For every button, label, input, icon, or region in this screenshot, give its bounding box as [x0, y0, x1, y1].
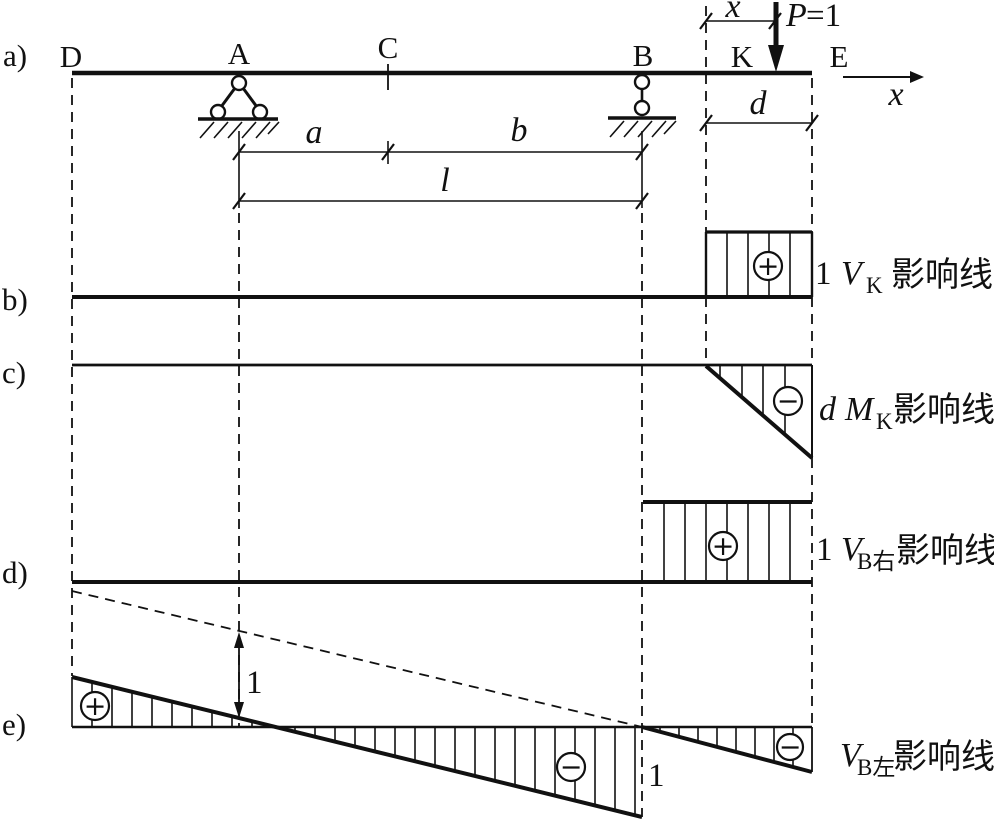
vbr-caption: 1 V B右 影响线 — [816, 531, 994, 574]
dim-a-label: a — [306, 114, 323, 151]
point-label-K: K — [731, 39, 754, 74]
panel-c-label: c) — [2, 355, 26, 390]
vbr-caption-text: 影响线 — [896, 532, 994, 570]
figure-canvas: a) D A C B K E — [0, 0, 994, 821]
panel-a-label: a) — [3, 38, 27, 73]
load-label-value: =1 — [806, 0, 841, 34]
point-label-D: D — [60, 39, 82, 74]
dim-b-label: b — [511, 112, 528, 149]
load-label-P: P — [785, 0, 807, 34]
vbr-subscript: B右 — [857, 549, 895, 574]
mk-caption-text: 影响线 — [893, 391, 994, 429]
mk-subscript: K — [876, 409, 893, 434]
influence-line-figure: a) D A C B K E — [0, 0, 994, 821]
panel-e-label: e) — [2, 707, 26, 742]
vk-ordinate: 1 — [815, 256, 832, 292]
support-A-right-hinge — [253, 105, 267, 119]
panel-d-label: d) — [2, 555, 28, 590]
point-label-B: B — [633, 38, 654, 73]
vbl-subscript: B左 — [857, 755, 895, 780]
vbl-unit-label: 1 — [246, 665, 263, 701]
dim-l-label: l — [440, 162, 449, 199]
vk-subscript: K — [866, 273, 883, 298]
vbl-plus-sign: + — [84, 691, 107, 722]
vbl-minus-sign-overhang: − — [779, 732, 802, 763]
dim-d-label: d — [750, 85, 768, 122]
mk-caption: d M K 影响线 — [819, 391, 994, 434]
vbl-minus-sign-span: − — [560, 752, 583, 783]
vk-caption-text: 影响线 — [891, 256, 993, 294]
vbl-caption-text: 影响线 — [893, 738, 994, 776]
mk-symbol: M — [844, 391, 875, 428]
vk-plus-sign: + — [757, 251, 780, 282]
support-A-top-hinge — [232, 76, 246, 90]
mk-ordinate: d — [819, 391, 837, 428]
support-B-bottom-hinge — [635, 101, 649, 115]
vbr-plus-sign: + — [712, 531, 735, 562]
point-label-E: E — [830, 39, 849, 74]
point-label-C: C — [378, 30, 399, 65]
support-A-left-hinge — [211, 105, 225, 119]
vbr-ordinate: 1 — [816, 532, 833, 568]
panel-b-label: b) — [2, 282, 28, 317]
x-axis-label: x — [887, 76, 903, 113]
vbl-ordinate-at-B: 1 — [648, 758, 665, 794]
dim-x-label: x — [724, 0, 740, 25]
vk-caption: 1 V K 影响线 — [815, 255, 993, 298]
point-label-A: A — [228, 36, 251, 71]
support-B-top-hinge — [635, 75, 649, 89]
mk-minus-sign: − — [777, 386, 800, 417]
